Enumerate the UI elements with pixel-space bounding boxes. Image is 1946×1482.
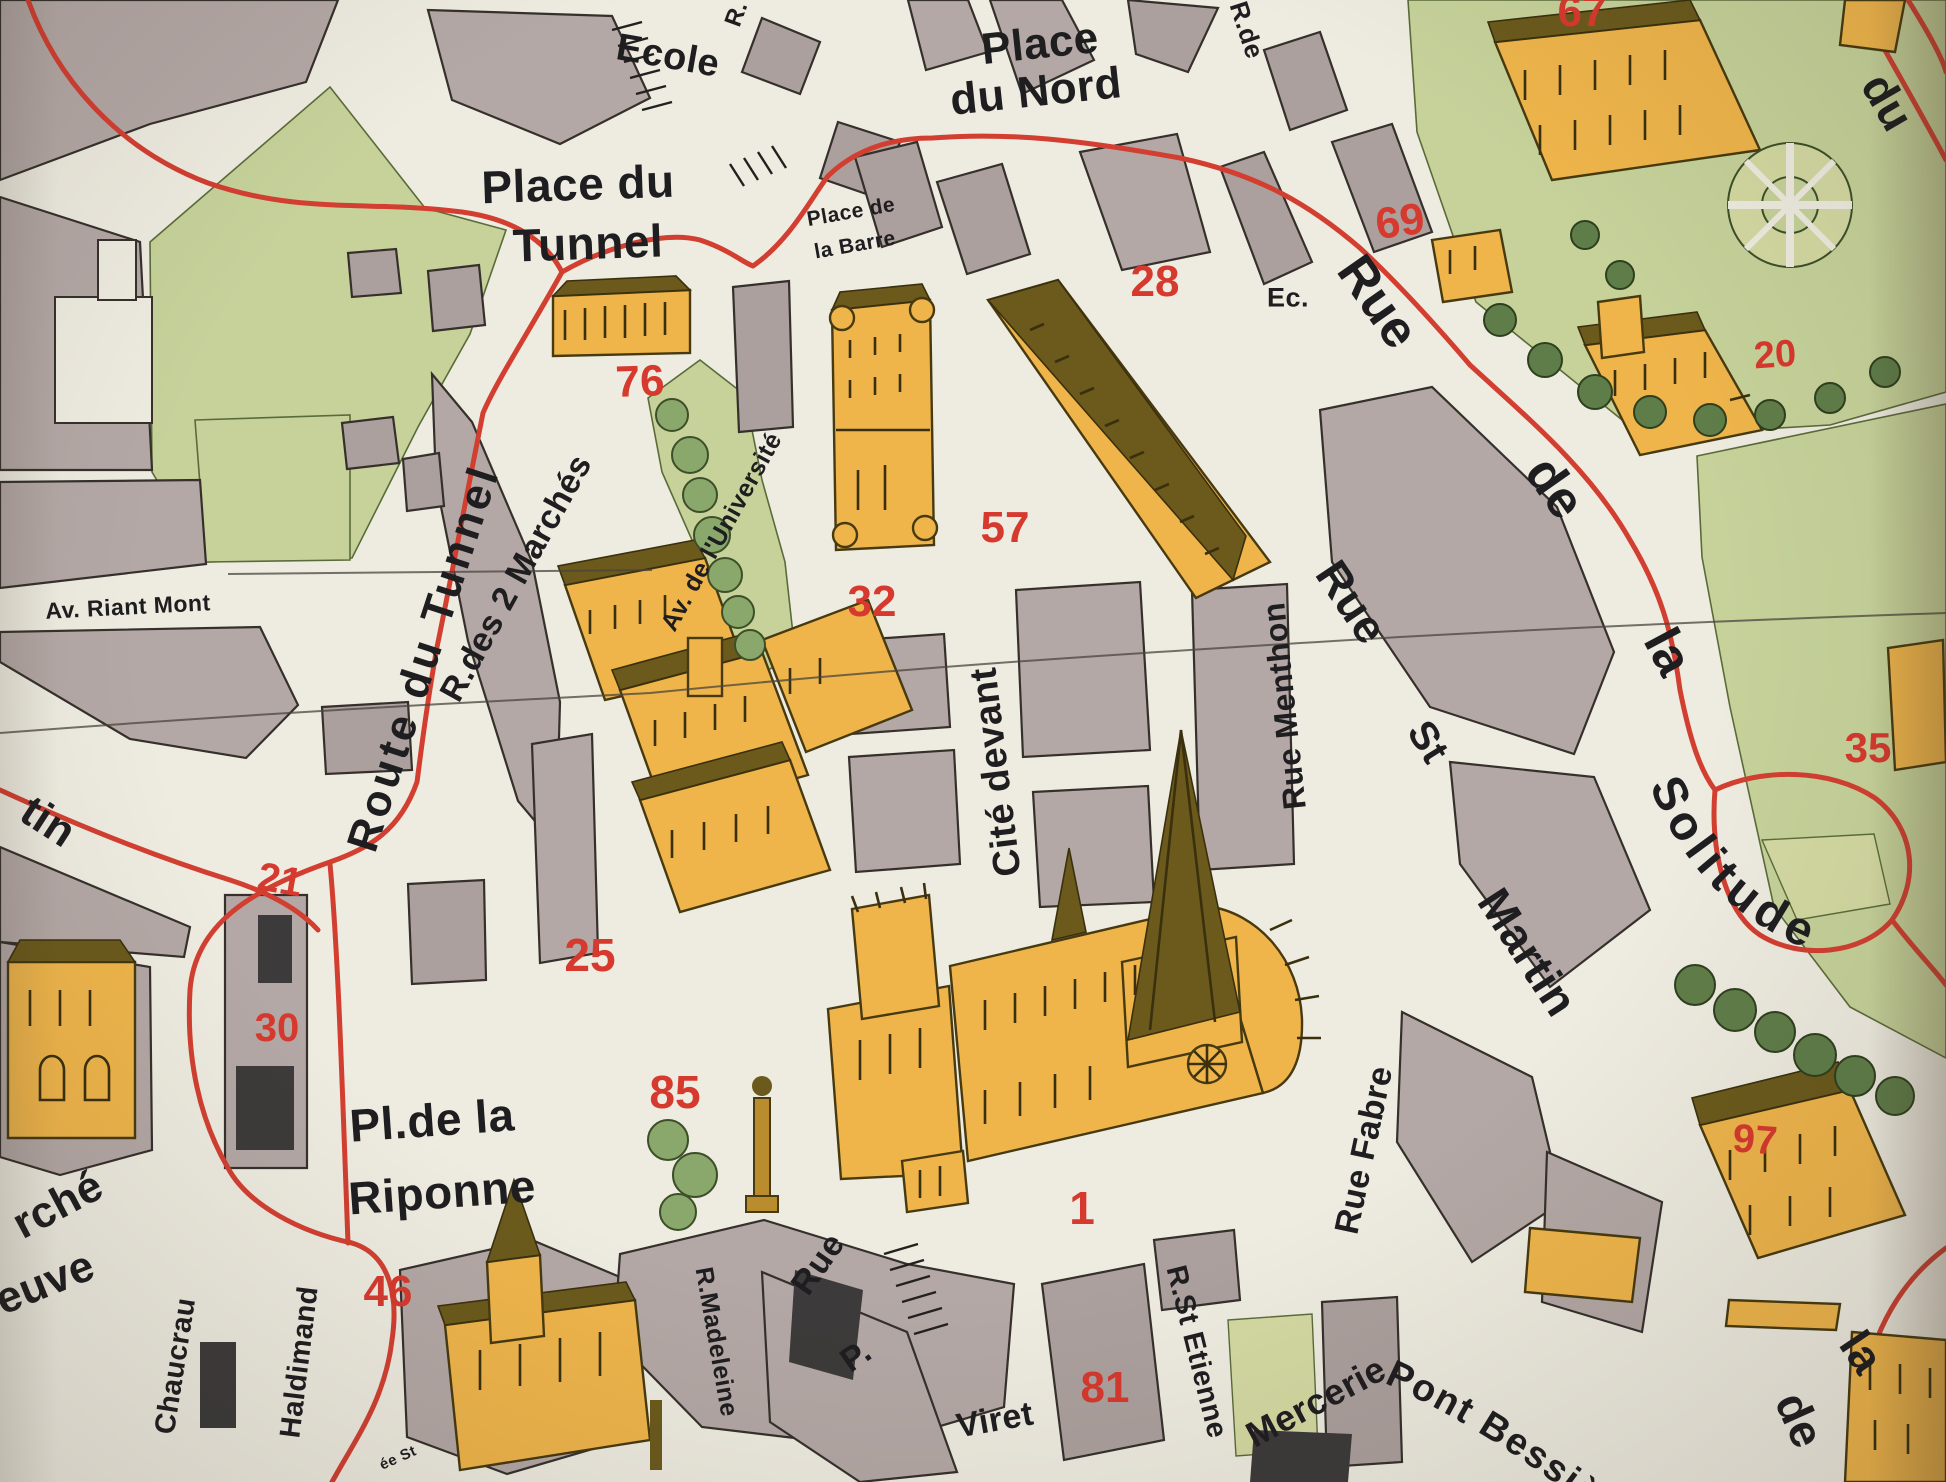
small-statue [650, 1400, 662, 1470]
map-number-35: 35 [1845, 727, 1892, 769]
map-number-81: 81 [1081, 1366, 1130, 1410]
map-number-21: 21 [255, 856, 306, 903]
map-number-69: 69 [1373, 197, 1428, 247]
house-97 [1692, 1062, 1905, 1258]
svg-text:Pont Bessières: Pont Bessières [1380, 1353, 1657, 1482]
map-number-30: 30 [255, 1008, 300, 1048]
bottom-right-buildings [1726, 1300, 1946, 1482]
map-number-25: 25 [564, 932, 615, 978]
label-ec-abbrev: Ec. [1267, 285, 1309, 312]
castle-illustration [830, 284, 937, 550]
bottom-church [438, 1180, 650, 1470]
long-building [988, 280, 1270, 598]
place-label-riponne-line2: Riponne [347, 1163, 537, 1222]
map-number-97: 97 [1731, 1118, 1778, 1161]
place-label-tunnel-line1: Place du [481, 158, 676, 211]
map-number-76: 76 [615, 359, 665, 405]
statue-column [746, 1076, 778, 1212]
house-35 [1888, 640, 1946, 770]
place-label-riponne-line1: Pl.de la [348, 1091, 516, 1148]
street-label-pont-bessieres: Pont Bessières [1380, 1353, 1657, 1482]
small-house-76 [553, 276, 690, 356]
map-number-28: 28 [1131, 260, 1180, 304]
map-number-67: 67 [1558, 0, 1607, 34]
map-number-85: 85 [649, 1069, 700, 1115]
formal-garden [1728, 143, 1852, 267]
small-building-right [1525, 1228, 1640, 1302]
place-label-tunnel-line2: Tunnel [512, 217, 664, 268]
left-church [8, 940, 135, 1138]
map-number-46: 46 [364, 1270, 413, 1314]
map-number-57: 57 [981, 506, 1030, 550]
pictorial-city-map: Solitude Pont Bessières Ecole Place du N… [0, 0, 1946, 1482]
map-number-32: 32 [848, 580, 897, 624]
map-number-1: 1 [1069, 1185, 1095, 1231]
map-number-20: 20 [1753, 335, 1798, 376]
